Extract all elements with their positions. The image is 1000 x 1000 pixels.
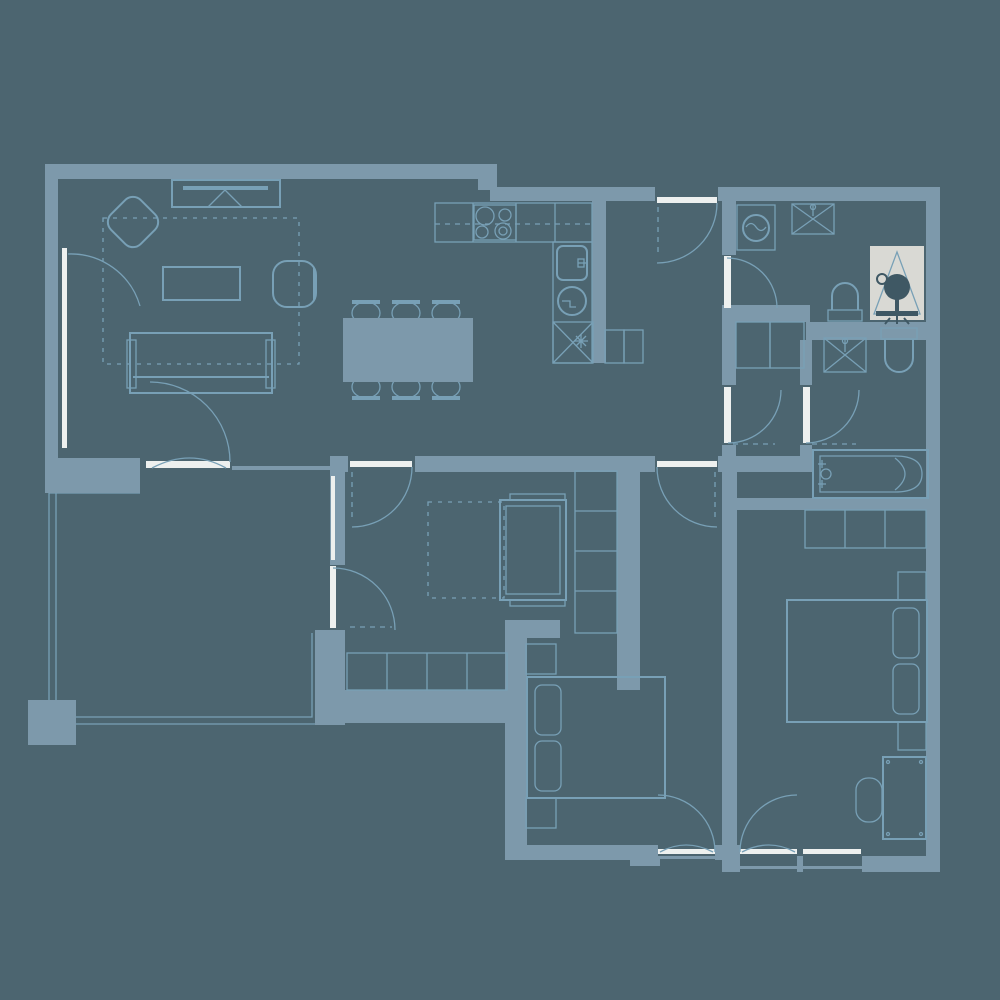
bedroom1-window	[331, 476, 335, 560]
floor-plan-drawing	[0, 0, 1000, 1000]
terrace-pier	[28, 700, 76, 745]
wall-right	[926, 187, 940, 872]
floor-plan-canvas	[0, 0, 1000, 1000]
shower-fixture-selected[interactable]	[870, 246, 924, 324]
asterisk-mark	[574, 334, 588, 348]
bedroom3-window[interactable]	[803, 849, 861, 854]
wall-left	[45, 164, 58, 458]
dining-table[interactable]	[343, 318, 473, 382]
